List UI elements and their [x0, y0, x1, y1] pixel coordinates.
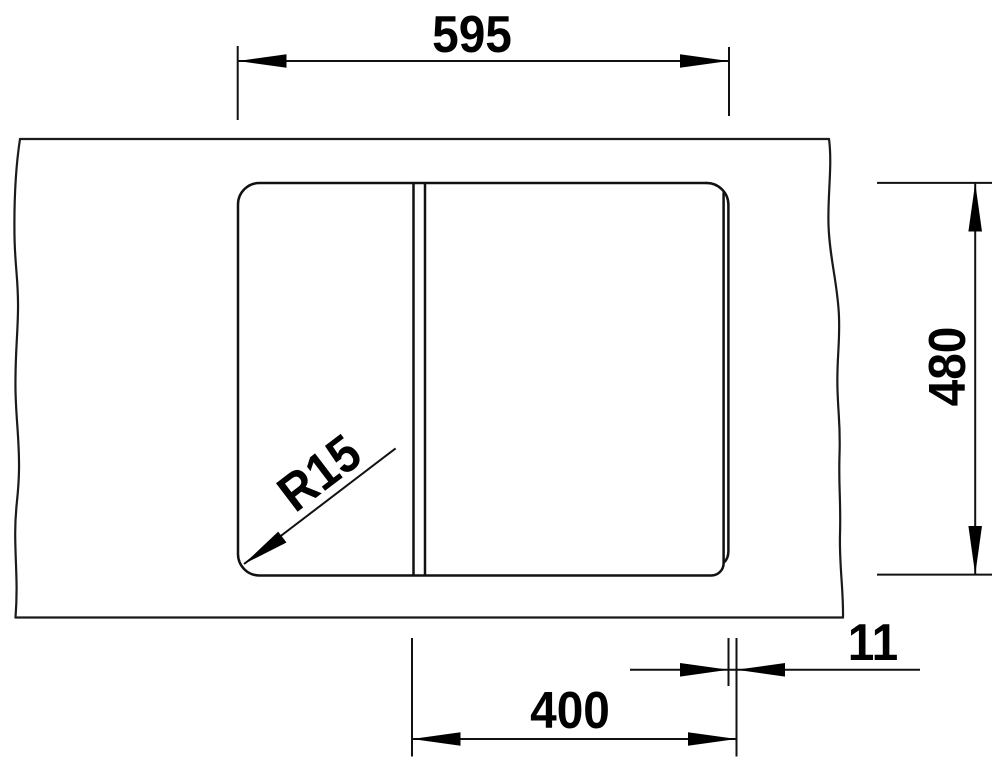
svg-text:480: 480 — [918, 327, 976, 407]
svg-text:595: 595 — [432, 5, 512, 63]
svg-text:400: 400 — [530, 681, 610, 739]
svg-text:11: 11 — [848, 613, 899, 671]
